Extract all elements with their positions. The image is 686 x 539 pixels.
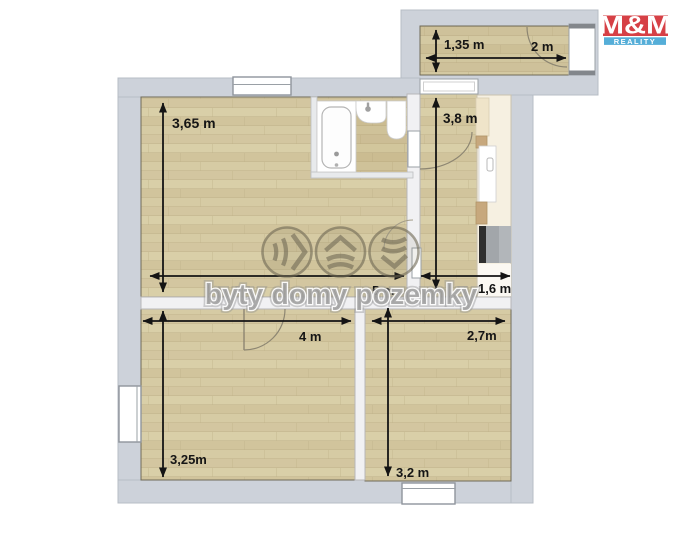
- svg-text:1,6 m: 1,6 m: [478, 281, 511, 296]
- svg-text:4 m: 4 m: [299, 329, 321, 344]
- svg-text:3,8 m: 3,8 m: [443, 111, 478, 126]
- svg-text:2 m: 2 m: [531, 39, 553, 54]
- svg-text:1,35 m: 1,35 m: [444, 37, 484, 52]
- svg-text:REALITY: REALITY: [614, 37, 657, 46]
- svg-text:3,65 m: 3,65 m: [172, 115, 216, 131]
- svg-text:2,7m: 2,7m: [467, 328, 497, 343]
- svg-text:byty domy pozemky: byty domy pozemky: [205, 279, 478, 311]
- svg-text:3,2 m: 3,2 m: [396, 465, 429, 480]
- svg-text:3,25m: 3,25m: [170, 452, 207, 467]
